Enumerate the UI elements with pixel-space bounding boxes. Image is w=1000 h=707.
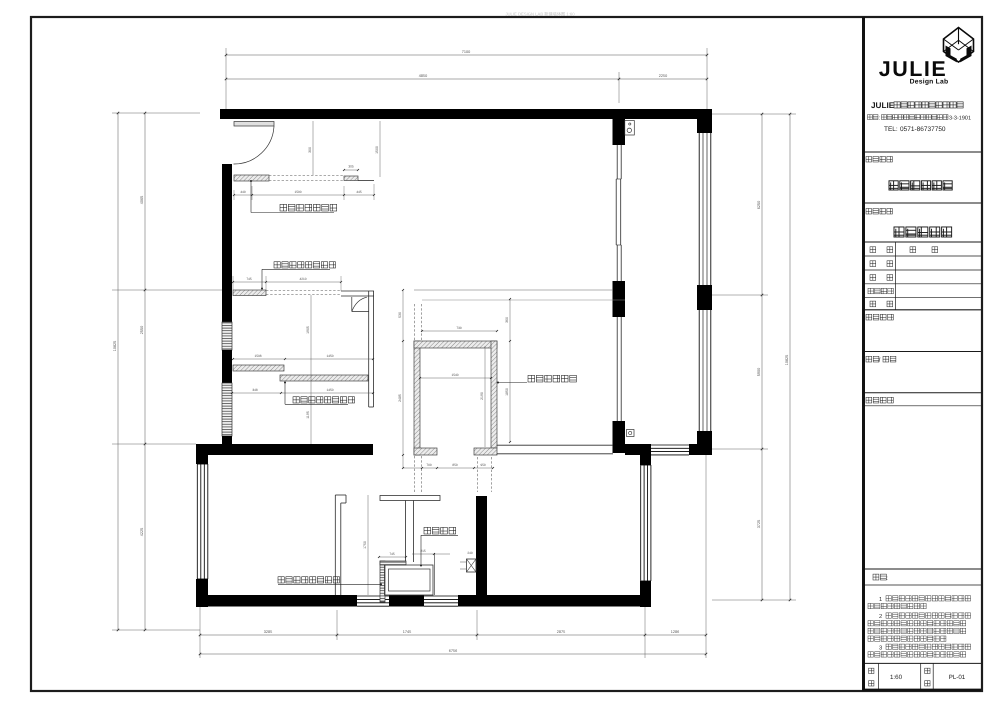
svg-text::: : — [886, 575, 888, 582]
svg-text:2: 2 — [879, 613, 882, 620]
svg-text:1195: 1195 — [306, 411, 310, 419]
svg-text:JULIE DESIGN LAB 新建墙体图 1:60: JULIE DESIGN LAB 新建墙体图 1:60 — [505, 12, 575, 17]
svg-text:2190: 2190 — [480, 392, 484, 400]
svg-text:348: 348 — [252, 388, 258, 392]
svg-text:1500: 1500 — [375, 146, 379, 154]
svg-text:10825: 10825 — [113, 341, 117, 352]
svg-text:1598: 1598 — [254, 354, 261, 358]
svg-text:300: 300 — [308, 147, 312, 153]
svg-text:3285: 3285 — [264, 630, 272, 634]
svg-text:730: 730 — [456, 326, 462, 330]
svg-text:6250: 6250 — [757, 201, 761, 209]
svg-text:1:60: 1:60 — [890, 674, 903, 681]
svg-text:6756: 6756 — [449, 649, 457, 653]
svg-text:1286: 1286 — [671, 630, 679, 634]
svg-text:445: 445 — [356, 190, 362, 194]
svg-text:JULIE: JULIE — [871, 101, 895, 110]
svg-text:360: 360 — [505, 317, 509, 323]
svg-text:1450: 1450 — [326, 388, 333, 392]
svg-text:1: 1 — [879, 597, 882, 603]
svg-text:JULIE: JULIE — [879, 57, 947, 81]
svg-text:950: 950 — [480, 463, 486, 467]
svg-text:4065: 4065 — [140, 196, 144, 204]
svg-text:4225: 4225 — [140, 528, 144, 536]
svg-text:3725: 3725 — [757, 520, 761, 528]
svg-text:1745: 1745 — [403, 630, 411, 634]
svg-text:440: 440 — [240, 190, 246, 194]
svg-text:2485: 2485 — [398, 394, 402, 402]
svg-text:1850: 1850 — [505, 388, 509, 396]
svg-text:1750: 1750 — [363, 541, 367, 549]
svg-text:850: 850 — [452, 463, 458, 467]
svg-text:7100: 7100 — [462, 50, 470, 54]
svg-text:1905: 1905 — [306, 326, 310, 334]
svg-text:5900: 5900 — [757, 368, 761, 376]
svg-text:PL-01: PL-01 — [949, 674, 966, 681]
svg-text:530: 530 — [398, 312, 402, 318]
svg-text:305: 305 — [348, 165, 354, 169]
svg-text:1540: 1540 — [451, 373, 458, 377]
svg-text:2875: 2875 — [557, 630, 565, 634]
svg-text:10825: 10825 — [785, 355, 789, 366]
svg-text:3: 3 — [879, 644, 882, 651]
svg-text:700: 700 — [426, 463, 432, 467]
svg-text:0571-86737750: 0571-86737750 — [900, 126, 946, 133]
svg-text:240: 240 — [467, 551, 473, 555]
svg-text:3-3-1901: 3-3-1901 — [949, 116, 971, 122]
svg-text:/: / — [879, 357, 881, 364]
svg-text:2550: 2550 — [140, 326, 144, 334]
svg-text:745: 745 — [246, 277, 252, 281]
svg-text:1500: 1500 — [294, 190, 301, 194]
svg-text:2250: 2250 — [659, 74, 667, 78]
svg-text:4850: 4850 — [419, 74, 427, 78]
svg-text:Design Lab: Design Lab — [910, 79, 949, 86]
svg-text:745: 745 — [389, 552, 395, 556]
svg-text:1450: 1450 — [326, 354, 333, 358]
svg-text:TEL:: TEL: — [884, 126, 898, 133]
svg-text:4210: 4210 — [299, 277, 306, 281]
